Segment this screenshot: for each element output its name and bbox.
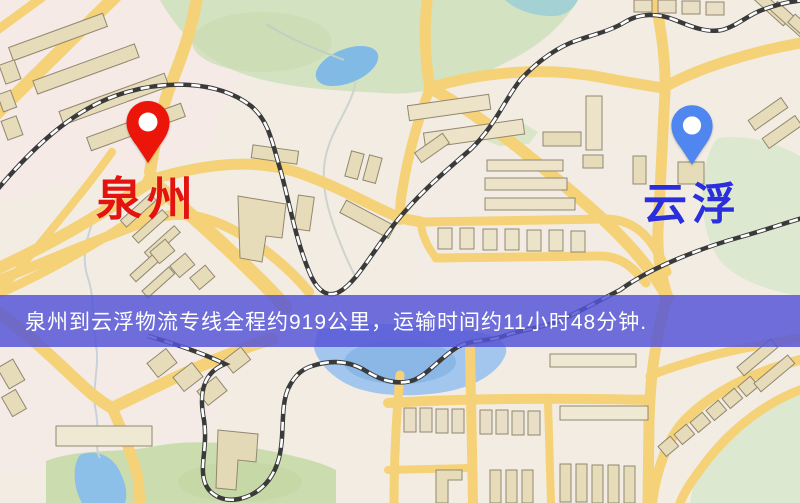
route-info-text: 泉州到云浮物流专线全程约919公里，运输时间约11小时48分钟. (0, 306, 647, 336)
destination-pin[interactable] (669, 101, 715, 169)
origin-label: 泉州 (96, 176, 198, 222)
destination-pin-hole (683, 116, 701, 134)
origin-pin-hole (139, 113, 158, 132)
destination-label: 云浮 (643, 183, 741, 227)
map-canvas (0, 0, 800, 503)
route-info-banner: 泉州到云浮物流专线全程约919公里，运输时间约11小时48分钟. (0, 295, 800, 347)
destination-pin-shape (671, 105, 712, 164)
origin-pin-shape (127, 101, 170, 163)
logistics-route-map: 泉州 云浮 泉州到云浮物流专线全程约919公里，运输时间约11小时48分钟. (0, 0, 800, 503)
origin-pin[interactable] (124, 97, 172, 167)
